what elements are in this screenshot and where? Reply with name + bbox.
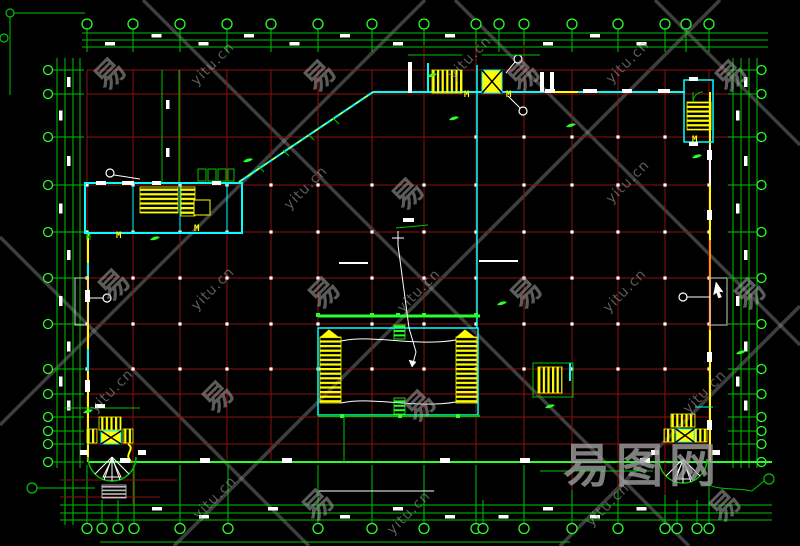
dimension-band-top (82, 19, 768, 52)
column-grid (85, 70, 758, 462)
svg-text:M: M (194, 224, 200, 234)
dimension-band-left (44, 58, 85, 525)
dimension-band-right (728, 58, 766, 468)
svg-text:M: M (464, 90, 470, 100)
svg-text:M: M (116, 231, 122, 241)
floor-plan-drawing: MMMMMM (0, 0, 800, 546)
watermark-diagonal-lines (0, 0, 800, 546)
building-features: MMMMMM (0, 9, 774, 542)
svg-text:M: M (86, 233, 91, 242)
cad-canvas[interactable]: MMMMMM 易yitu.cn易yitu.cn易yitu.cn易yitu.cn易… (0, 0, 800, 546)
